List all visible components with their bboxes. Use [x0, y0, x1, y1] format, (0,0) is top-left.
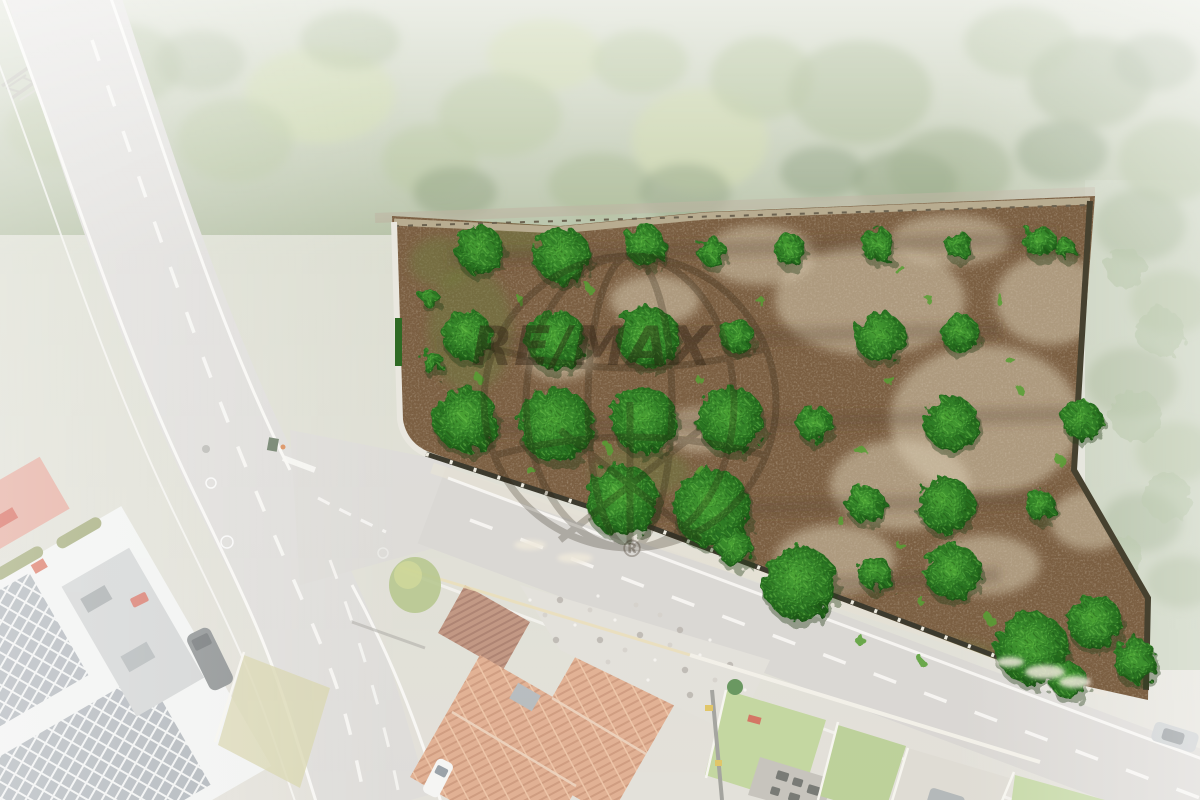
- aerial-photo: RE/MAX ®: [0, 0, 1200, 800]
- watermark-registered-symbol: ®: [620, 535, 644, 563]
- aerial-photo-canvas: RE/MAX ®: [0, 0, 1200, 800]
- wall-hedge: [395, 318, 402, 366]
- watermark-brand-text: RE/MAX: [471, 315, 714, 378]
